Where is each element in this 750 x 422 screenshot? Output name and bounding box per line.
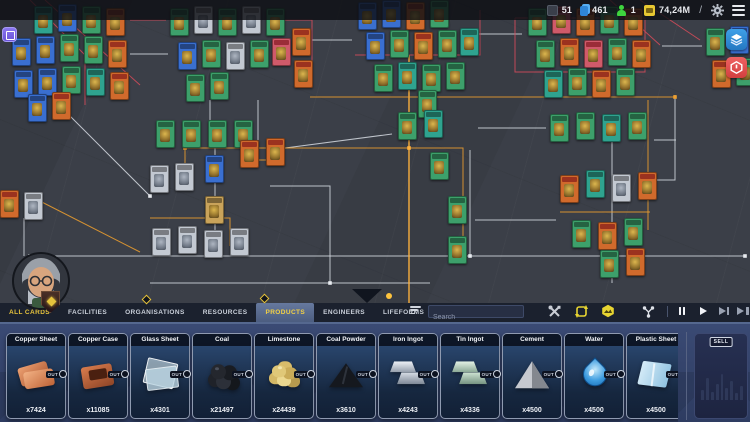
search-input[interactable] bbox=[429, 312, 531, 323]
pause-button[interactable] bbox=[676, 305, 688, 317]
tray-card-limestone[interactable]: Limestone OUT x24439 bbox=[254, 333, 314, 419]
tray-card-count: x4500 bbox=[627, 407, 678, 414]
fast-forward-icon bbox=[719, 307, 726, 315]
out-connector[interactable]: OUT bbox=[170, 370, 191, 378]
board-card[interactable] bbox=[150, 165, 169, 193]
board-card[interactable] bbox=[208, 120, 227, 148]
board-card[interactable] bbox=[230, 228, 249, 256]
board-card[interactable] bbox=[706, 28, 725, 56]
tab-engineers[interactable]: ENGINEERS bbox=[314, 303, 374, 322]
photo-mode-icon[interactable] bbox=[2, 27, 17, 42]
board-card[interactable] bbox=[202, 40, 221, 68]
sell-chart-icon bbox=[701, 366, 743, 400]
board-card[interactable] bbox=[438, 30, 457, 58]
tray-card-count: x4500 bbox=[503, 407, 561, 414]
connector-ring-icon bbox=[245, 370, 253, 378]
board-card[interactable] bbox=[292, 28, 311, 56]
polymer-icon bbox=[601, 304, 615, 318]
tray-card-plastic-sheet[interactable]: Plastic Sheet OUT x4500 bbox=[626, 333, 678, 419]
board-card[interactable] bbox=[460, 28, 479, 56]
out-connector[interactable]: OUT bbox=[294, 370, 315, 378]
board-card[interactable] bbox=[422, 64, 441, 92]
top-hud-bar: / 51461174,24M bbox=[0, 0, 750, 20]
board-card[interactable] bbox=[60, 34, 79, 62]
repair-tools-button[interactable] bbox=[547, 304, 561, 318]
connector-ring-icon bbox=[59, 370, 67, 378]
board-card[interactable] bbox=[182, 120, 201, 148]
tray-card-count: x4301 bbox=[131, 407, 189, 414]
board-card[interactable] bbox=[28, 94, 47, 122]
tray-card-title: Iron Ingot bbox=[379, 334, 437, 346]
tray-card-count: x4500 bbox=[565, 407, 623, 414]
board-card[interactable] bbox=[598, 222, 617, 250]
tab-resources[interactable]: RESOURCES bbox=[194, 303, 257, 322]
skip-to-end-button[interactable] bbox=[737, 305, 749, 317]
board-card[interactable] bbox=[12, 38, 31, 66]
out-connector[interactable]: OUT bbox=[542, 370, 563, 378]
tray-card-count: x3610 bbox=[317, 407, 375, 414]
hamburger-icon bbox=[732, 4, 745, 17]
connector-ring-icon bbox=[617, 370, 625, 378]
board-card[interactable] bbox=[572, 220, 591, 248]
gear-icon bbox=[711, 4, 724, 17]
board-card[interactable] bbox=[366, 32, 385, 60]
board-card[interactable] bbox=[616, 68, 635, 96]
hud-stat: 1 bbox=[616, 5, 636, 16]
connector-ring-icon bbox=[431, 370, 439, 378]
board-card[interactable] bbox=[0, 190, 19, 218]
game-screen: / 51461174,24M bbox=[0, 0, 750, 422]
connector-ring-icon bbox=[183, 370, 191, 378]
board-card[interactable] bbox=[600, 250, 619, 278]
board-card[interactable] bbox=[626, 248, 645, 276]
board-card[interactable] bbox=[430, 152, 449, 180]
board-card[interactable] bbox=[398, 62, 417, 90]
out-connector[interactable]: OUT bbox=[232, 370, 253, 378]
board-card[interactable] bbox=[398, 112, 417, 140]
board-card[interactable] bbox=[24, 192, 43, 220]
network-icon bbox=[642, 305, 655, 318]
tab-facilities[interactable]: FACILITIES bbox=[59, 303, 116, 322]
money-icon bbox=[644, 5, 655, 16]
out-connector[interactable]: OUT bbox=[46, 370, 67, 378]
layers-icon bbox=[730, 33, 743, 46]
card-tray: Copper Sheet OUT x7424 Copper Case OUT x… bbox=[0, 322, 750, 422]
hud-stat-value: 51 bbox=[562, 5, 572, 15]
board-card[interactable] bbox=[178, 42, 197, 70]
board-card[interactable] bbox=[628, 112, 647, 140]
network-button[interactable] bbox=[641, 304, 655, 318]
card-category-tabbar: ALL CARDSFACILITIESORGANISATIONSRESOURCE… bbox=[0, 303, 750, 322]
sell-card[interactable]: SELL bbox=[694, 333, 748, 419]
board-card[interactable] bbox=[152, 228, 171, 256]
out-connector[interactable]: OUT bbox=[356, 370, 377, 378]
tray-card-title: Copper Case bbox=[69, 334, 127, 346]
board-card[interactable] bbox=[560, 175, 579, 203]
board-card[interactable] bbox=[108, 40, 127, 68]
hud-stat-value: 74,24M bbox=[659, 5, 690, 15]
out-connector[interactable]: OUT bbox=[666, 370, 678, 378]
board-card[interactable] bbox=[272, 38, 291, 66]
menu-button[interactable] bbox=[732, 4, 745, 17]
board-card[interactable] bbox=[205, 196, 224, 224]
tray-card-count: x21497 bbox=[193, 407, 251, 414]
tray-card-copper-case[interactable]: Copper Case OUT x11085 bbox=[68, 333, 128, 419]
tab-lifeforms[interactable]: LIFEFORMS bbox=[374, 303, 433, 322]
connector-ring-icon bbox=[555, 370, 563, 378]
board-card[interactable] bbox=[175, 163, 194, 191]
board-card[interactable] bbox=[374, 64, 393, 92]
board-card[interactable] bbox=[52, 92, 71, 120]
board-card[interactable] bbox=[632, 40, 651, 68]
hud-stat-value: 461 bbox=[592, 5, 608, 15]
tray-card-title: Cement bbox=[503, 334, 561, 346]
board-card[interactable] bbox=[266, 138, 285, 166]
board-card[interactable] bbox=[448, 236, 467, 264]
board-card[interactable] bbox=[240, 140, 259, 168]
board-card[interactable] bbox=[544, 70, 563, 98]
tray-card-count: x11085 bbox=[69, 407, 127, 414]
tray-card-title: Copper Sheet bbox=[7, 334, 65, 346]
tray-card-iron-ingot[interactable]: Iron Ingot OUT x4243 bbox=[378, 333, 438, 419]
settings-button[interactable] bbox=[711, 4, 724, 17]
board-card[interactable] bbox=[568, 68, 587, 96]
wire-endpoint-dot bbox=[386, 293, 392, 299]
board-card[interactable] bbox=[586, 170, 605, 198]
tray-card-count: x24439 bbox=[255, 407, 313, 414]
out-connector[interactable]: OUT bbox=[604, 370, 625, 378]
tray-card-count: x4243 bbox=[379, 407, 437, 414]
filter-button[interactable] bbox=[410, 306, 422, 316]
tray-card-coal[interactable]: Coal OUT x21497 bbox=[192, 333, 252, 419]
connector-ring-icon bbox=[307, 370, 315, 378]
board-card[interactable] bbox=[250, 40, 269, 68]
board-card[interactable] bbox=[414, 32, 433, 60]
board-card[interactable] bbox=[592, 70, 611, 98]
board-card[interactable] bbox=[608, 38, 627, 66]
board-card[interactable] bbox=[205, 155, 224, 183]
tray-card-coal-powder[interactable]: Coal Powder OUT x3610 bbox=[316, 333, 376, 419]
tray-card-title: Limestone bbox=[255, 334, 313, 346]
board-card[interactable] bbox=[536, 40, 555, 68]
board-card[interactable] bbox=[448, 196, 467, 224]
board-card[interactable] bbox=[638, 172, 657, 200]
connector-ring-icon bbox=[121, 370, 129, 378]
repair-tools-icon bbox=[548, 305, 561, 318]
tray-card-title: Plastic Sheet bbox=[627, 334, 678, 346]
board-card[interactable] bbox=[36, 36, 55, 64]
collapse-tray-handle[interactable] bbox=[352, 289, 382, 303]
board-card[interactable] bbox=[226, 42, 245, 70]
toolbar-divider bbox=[667, 306, 668, 317]
sell-label: SELL bbox=[710, 337, 733, 347]
recycle-icon bbox=[575, 305, 588, 318]
board-card[interactable] bbox=[186, 74, 205, 102]
hud-divider: / bbox=[699, 5, 702, 16]
board-card[interactable] bbox=[390, 30, 409, 58]
board-card[interactable] bbox=[62, 66, 81, 94]
recycle-button[interactable] bbox=[574, 304, 588, 318]
out-connector[interactable]: OUT bbox=[418, 370, 439, 378]
tray-card-cement[interactable]: Cement OUT x4500 bbox=[502, 333, 562, 419]
power-hex-icon bbox=[730, 61, 743, 74]
board-card[interactable] bbox=[560, 38, 579, 66]
out-connector[interactable]: OUT bbox=[108, 370, 129, 378]
board-card[interactable] bbox=[178, 226, 197, 254]
board-card[interactable] bbox=[294, 60, 313, 88]
tray-card-title: Coal bbox=[193, 334, 251, 346]
board-card[interactable] bbox=[446, 62, 465, 90]
tray-card-glass-sheet[interactable]: Glass Sheet OUT x4301 bbox=[130, 333, 190, 419]
hud-stat-value: 1 bbox=[631, 5, 636, 15]
fast-forward-button[interactable] bbox=[718, 305, 730, 317]
board-card[interactable] bbox=[584, 40, 603, 68]
connector-ring-icon bbox=[369, 370, 377, 378]
tray-card-title: Tin Ingot bbox=[441, 334, 499, 346]
hud-stat: 51 bbox=[547, 5, 572, 16]
lifeform-icon bbox=[616, 5, 627, 16]
board-card[interactable] bbox=[624, 218, 643, 246]
tray-card-copper-sheet[interactable]: Copper Sheet OUT x7424 bbox=[6, 333, 66, 419]
play-icon bbox=[700, 307, 707, 315]
board-card[interactable] bbox=[550, 114, 569, 142]
tab-organisations[interactable]: ORGANISATIONS bbox=[116, 303, 194, 322]
play-button[interactable] bbox=[697, 305, 709, 317]
tray-card-title: Coal Powder bbox=[317, 334, 375, 346]
layers-button[interactable] bbox=[726, 29, 747, 50]
board-card[interactable] bbox=[210, 72, 229, 100]
out-connector[interactable]: OUT bbox=[480, 370, 501, 378]
tray-card-count: x4336 bbox=[441, 407, 499, 414]
board-card[interactable] bbox=[576, 112, 595, 140]
tray-card-count: x7424 bbox=[7, 407, 65, 414]
board-card[interactable] bbox=[204, 230, 223, 258]
board-card[interactable] bbox=[424, 110, 443, 138]
board-card[interactable] bbox=[84, 36, 103, 64]
board-card[interactable] bbox=[156, 120, 175, 148]
polymer-button[interactable] bbox=[601, 304, 615, 318]
pause-icon bbox=[679, 307, 682, 315]
board-card[interactable] bbox=[612, 174, 631, 202]
connector-ring-icon bbox=[493, 370, 501, 378]
deck-icon bbox=[547, 5, 558, 16]
power-button[interactable] bbox=[726, 57, 747, 78]
tray-card-title: Glass Sheet bbox=[131, 334, 189, 346]
hud-stat: 461 bbox=[580, 5, 608, 15]
board-card[interactable] bbox=[110, 72, 129, 100]
skip-to-end-icon bbox=[737, 307, 744, 315]
board-card[interactable] bbox=[602, 114, 621, 142]
hud-stat: 74,24M bbox=[644, 5, 690, 16]
search-box bbox=[428, 305, 524, 318]
tab-products[interactable]: PRODUCTS bbox=[256, 303, 314, 322]
board-card[interactable] bbox=[86, 68, 105, 96]
cards-icon bbox=[580, 6, 588, 16]
tray-card-title: Water bbox=[565, 334, 623, 346]
tray-divider bbox=[686, 332, 687, 420]
tray-card-tin-ingot[interactable]: Tin Ingot OUT x4336 bbox=[440, 333, 500, 419]
tray-card-water[interactable]: Water OUT x4500 bbox=[564, 333, 624, 419]
